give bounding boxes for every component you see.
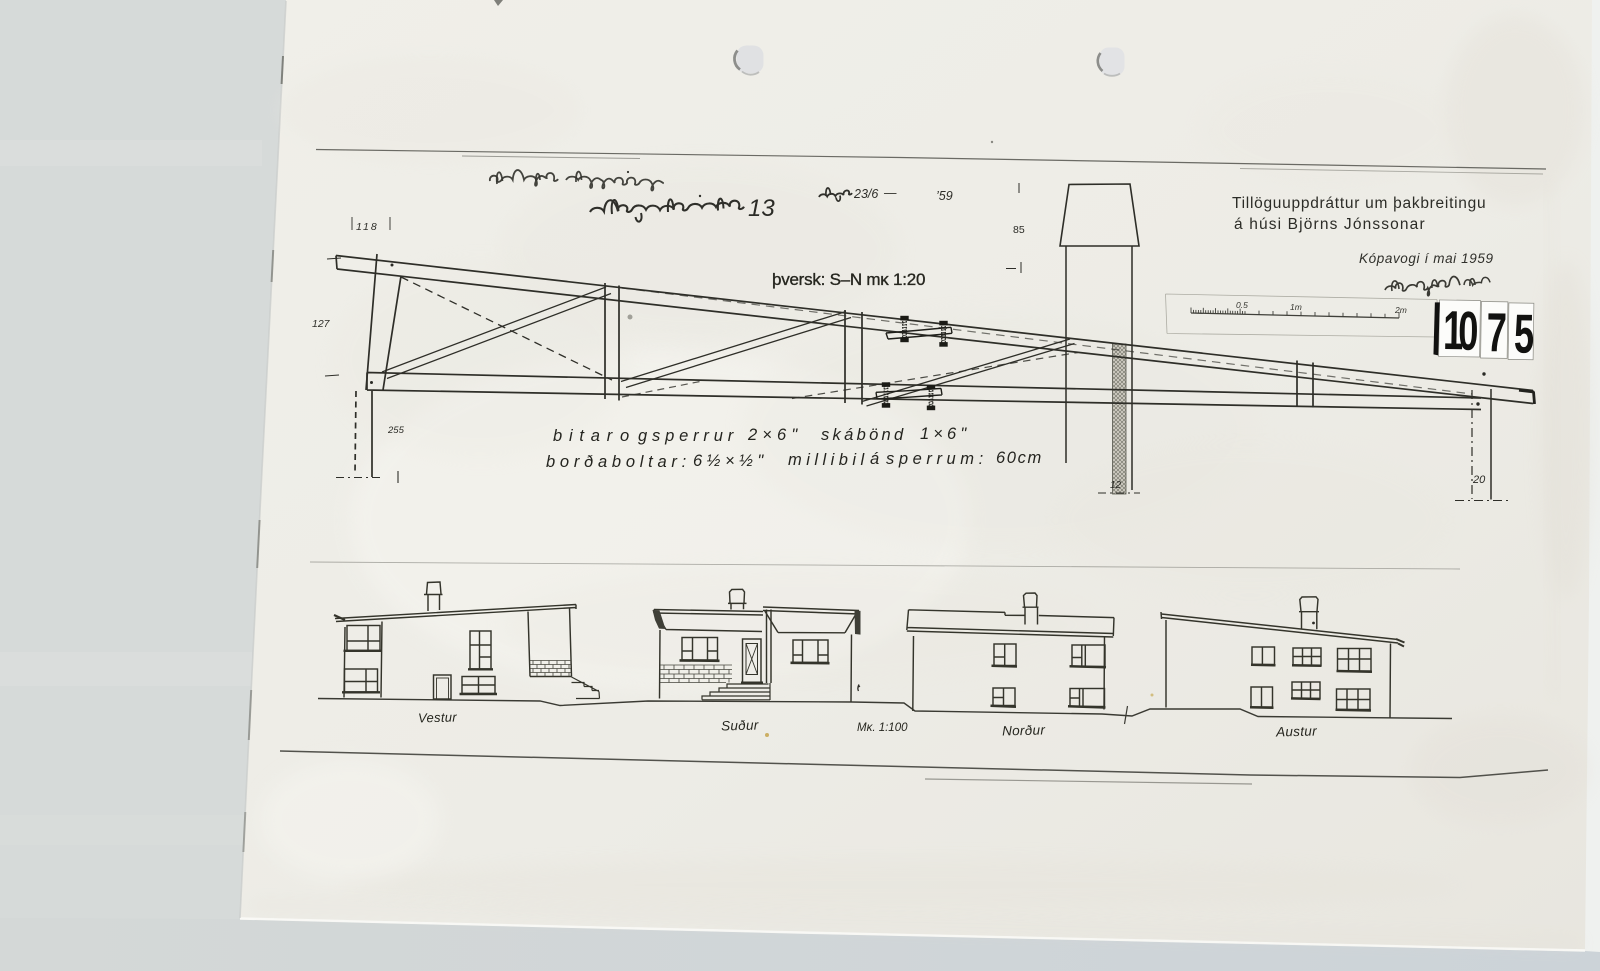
svg-text:þversk: S–N mĸ 1:20: þversk: S–N mĸ 1:20 <box>772 270 926 289</box>
svg-text:127: 127 <box>312 318 331 330</box>
svg-text:2m: 2m <box>1394 305 1407 315</box>
svg-text:Norður: Norður <box>1002 722 1046 738</box>
svg-text:millibil: millibil <box>788 451 866 469</box>
svg-text:Kópavogi í mai 1959: Kópavogi í mai 1959 <box>1359 251 1493 266</box>
svg-text:2×6": 2×6" <box>747 426 798 444</box>
svg-text:5: 5 <box>1514 303 1535 365</box>
svg-text:borðaboltar:: borðaboltar: <box>546 453 687 471</box>
svg-text:255: 255 <box>387 425 405 436</box>
svg-text:—: — <box>883 186 897 200</box>
svg-text:Mĸ. 1:100: Mĸ. 1:100 <box>857 722 908 734</box>
svg-text:1m: 1m <box>1290 302 1302 312</box>
svg-text:0.5: 0.5 <box>1236 300 1248 310</box>
svg-text:Tillöguuppdráttur um þakbreiti: Tillöguuppdráttur um þakbreitingu <box>1232 195 1486 212</box>
svg-text:85: 85 <box>1013 224 1025 236</box>
svg-text:Suður: Suður <box>721 718 759 734</box>
svg-text:á: á <box>870 450 880 468</box>
svg-text:’59: ’59 <box>936 189 953 203</box>
svg-text:23/6: 23/6 <box>853 187 878 201</box>
svg-text:Vestur: Vestur <box>418 709 458 725</box>
svg-text:0: 0 <box>1458 300 1479 362</box>
svg-text:13: 13 <box>748 195 775 222</box>
svg-text:7: 7 <box>1486 302 1507 364</box>
svg-text:á húsi Björns Jónssonar: á húsi Björns Jónssonar <box>1234 216 1425 233</box>
svg-text:118: 118 <box>356 221 379 233</box>
svg-text:60cm: 60cm <box>996 449 1042 467</box>
svg-text:20: 20 <box>1472 474 1486 486</box>
svg-text:12: 12 <box>1110 480 1122 491</box>
svg-text:1×6": 1×6" <box>920 425 967 443</box>
svg-text:sperrur: sperrur <box>652 427 735 445</box>
svg-text:Austur: Austur <box>1275 723 1317 739</box>
